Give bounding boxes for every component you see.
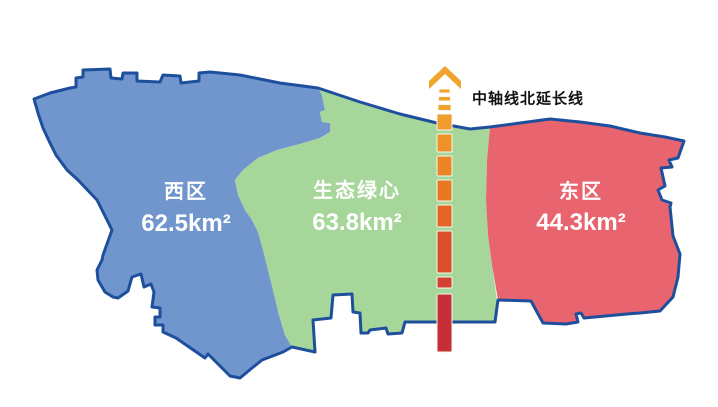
green-heart-area-label: 63.8km²: [312, 211, 401, 235]
axis-dash-segment: [437, 156, 452, 176]
east-district-area-label: 44.3km²: [536, 211, 625, 235]
green-heart-name-label: 生态绿心: [313, 181, 401, 201]
axis-dash-segment: [437, 180, 452, 201]
east-district-name-label: 东区: [559, 182, 603, 202]
axis-dash-line: [437, 89, 452, 352]
west-district-area-label: 62.5km²: [141, 212, 230, 236]
district-map-svg: [0, 0, 718, 407]
axis-dash-segment: [437, 134, 452, 152]
axis-dash-segment: [437, 205, 452, 227]
up-arrow-icon: [429, 66, 461, 89]
axis-extension-line-label: 中轴线北延长线: [472, 92, 584, 107]
west-district-name-label: 西区: [164, 182, 208, 202]
axis-dash-segment: [437, 294, 452, 352]
axis-dash-segment: [439, 89, 450, 93]
axis-dash-segment: [439, 97, 451, 102]
axis-dash-segment: [437, 277, 452, 288]
axis-dash-segment: [437, 231, 452, 273]
axis-dash-segment: [437, 114, 452, 130]
axis-dash-segment: [438, 105, 451, 111]
district-map-canvas: 西区 62.5km² 生态绿心 63.8km² 东区 44.3km² 中轴线北延…: [0, 0, 718, 407]
